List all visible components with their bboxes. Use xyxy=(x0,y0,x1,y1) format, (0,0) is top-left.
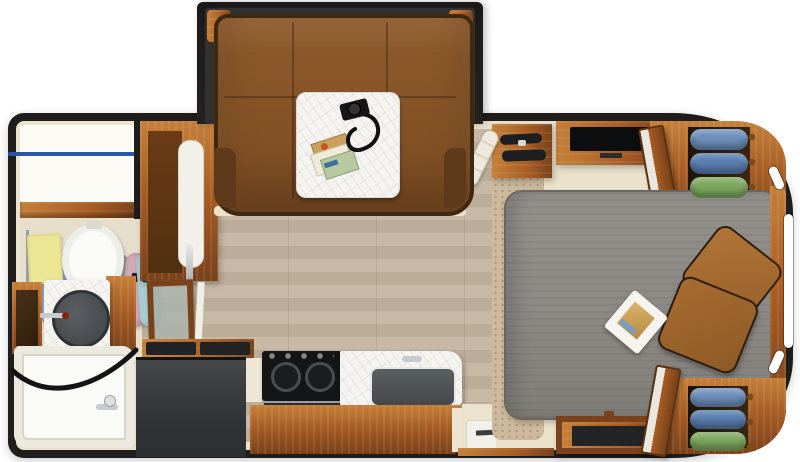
sofa-armrest-left xyxy=(214,148,236,208)
step-latch xyxy=(518,140,526,146)
closet-rod xyxy=(8,152,142,156)
vessel-sink xyxy=(52,290,110,348)
folded-clothes xyxy=(690,388,746,407)
closet-shelf xyxy=(20,202,138,218)
trailer-floorplan xyxy=(0,0,800,462)
burner-right xyxy=(305,362,335,392)
refrigerator-front xyxy=(136,357,246,457)
kitchen-faucet xyxy=(402,356,422,362)
entry-threshold xyxy=(458,448,554,456)
burner-left xyxy=(271,362,301,392)
folded-clothes xyxy=(690,129,748,150)
media-chest-knob xyxy=(604,411,614,419)
shower-rod xyxy=(8,342,140,414)
kitchen-sink xyxy=(370,367,456,407)
appliance-side-panel xyxy=(246,358,262,402)
media-chest-inset xyxy=(572,426,652,446)
tv-stand xyxy=(600,153,622,158)
sofa-armrest-right xyxy=(444,148,466,208)
vanity-mirror-inset xyxy=(16,290,38,346)
range-glass-cover-right xyxy=(200,342,250,355)
entry-step-slot-2 xyxy=(502,149,546,162)
faucet-knob xyxy=(62,312,69,319)
table-items xyxy=(297,93,399,197)
dinette-table xyxy=(296,92,400,198)
cabinet-inset xyxy=(148,131,182,273)
cooktop-knobs xyxy=(268,352,334,360)
toilet-hinge xyxy=(86,221,102,229)
folded-clothes xyxy=(690,410,746,429)
folded-clothes xyxy=(690,153,748,174)
yellow-towel xyxy=(27,233,64,285)
folded-clothes xyxy=(690,432,746,451)
front-cap-center-window xyxy=(784,214,793,348)
sofa-seam-left xyxy=(292,22,294,198)
range-glass-cover-left xyxy=(146,342,196,355)
kitchen-base-cabinets xyxy=(250,405,462,454)
folded-clothes xyxy=(690,177,748,198)
wardrobe-bottom-hooks xyxy=(746,390,754,452)
